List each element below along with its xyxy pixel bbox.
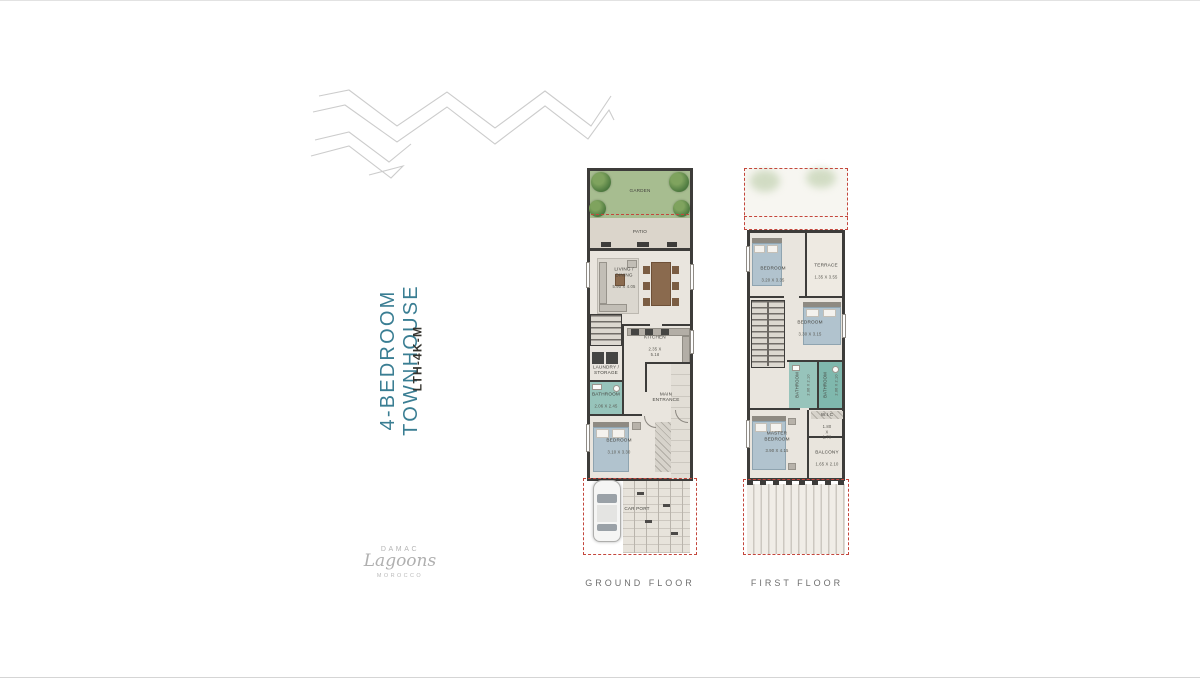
- ground-floor-caption: GROUND FLOOR: [585, 578, 695, 588]
- sink: [792, 365, 800, 371]
- room-terrace: [807, 233, 842, 296]
- wall: [622, 326, 624, 414]
- washing-machine: [592, 352, 604, 364]
- nightstand: [788, 418, 796, 425]
- pillow: [806, 309, 819, 317]
- coffee-table: [615, 274, 625, 286]
- planter: [601, 242, 611, 247]
- pergola-boundary-dashed: [743, 479, 849, 555]
- washing-machine: [606, 352, 618, 364]
- cooktop: [631, 329, 639, 335]
- roof-inner-dashed-line: [744, 216, 848, 217]
- dining-table: [651, 262, 671, 306]
- wall: [817, 362, 819, 408]
- window: [746, 246, 750, 272]
- chair: [643, 266, 650, 274]
- page-bottom-rule: [0, 677, 1200, 678]
- pillow: [612, 429, 625, 438]
- toilet: [832, 366, 839, 373]
- wall: [590, 414, 642, 416]
- room-garden: [587, 168, 693, 218]
- nightstand: [632, 422, 641, 430]
- window: [586, 424, 590, 452]
- stair-rail: [767, 302, 769, 366]
- planter: [667, 242, 677, 247]
- wall: [750, 408, 800, 410]
- wardrobe: [655, 422, 671, 472]
- pillow: [596, 429, 609, 438]
- brand-logo: DAMAC Lagoons MOROCCO: [340, 546, 460, 579]
- pillow: [823, 309, 836, 317]
- ground-floor-plan: GARDEN PATIO LIVING / DINING 5.90 X 4.05…: [587, 168, 693, 555]
- wall: [590, 380, 622, 382]
- tree-icon: [669, 172, 689, 192]
- window: [746, 420, 750, 448]
- sofa: [599, 304, 627, 312]
- window: [586, 262, 590, 288]
- model-code: LTH-4K-M: [411, 319, 426, 399]
- sofa: [599, 262, 607, 304]
- wall: [787, 360, 845, 362]
- pillow: [767, 245, 778, 253]
- wall: [750, 296, 784, 298]
- page-title: 4-BEDROOM TOWNHOUSE: [377, 225, 403, 495]
- oven: [661, 329, 669, 335]
- room-balcony: [809, 438, 842, 478]
- chair: [672, 298, 679, 306]
- planter: [637, 242, 649, 247]
- wardrobe: [811, 411, 843, 419]
- wall: [805, 230, 807, 296]
- window: [842, 314, 846, 338]
- tree-icon: [591, 172, 611, 192]
- toilet: [613, 385, 620, 392]
- nightstand: [788, 463, 796, 470]
- chair: [672, 282, 679, 290]
- chair: [643, 282, 650, 290]
- staircase: [590, 314, 622, 346]
- pillow: [754, 245, 765, 253]
- sink-appliance: [645, 329, 653, 335]
- pillow: [770, 423, 782, 432]
- first-floor-plan: BEDROOM 3.20 X 3.35 TERRACE 1.35 X 3.55 …: [747, 168, 845, 555]
- wall: [647, 362, 690, 364]
- page-top-rule: [0, 0, 1200, 1]
- wave-decoration: [305, 82, 625, 187]
- sink: [592, 384, 602, 390]
- armchair: [627, 260, 637, 268]
- pillow: [755, 423, 767, 432]
- window: [690, 330, 694, 354]
- chair: [672, 266, 679, 274]
- wall: [799, 296, 845, 298]
- brand-region: MOROCCO: [340, 573, 460, 579]
- plot-boundary-dashed-line: [591, 214, 689, 215]
- window: [690, 264, 694, 290]
- first-floor-caption: FIRST FLOOR: [751, 578, 843, 588]
- wall: [809, 436, 845, 438]
- carport-boundary-dashed: [583, 478, 697, 555]
- chair: [643, 298, 650, 306]
- wall: [807, 410, 809, 479]
- wall: [645, 362, 647, 392]
- wall: [809, 408, 845, 410]
- brand-product: Lagoons: [340, 553, 460, 571]
- roof-boundary-dashed: [744, 168, 848, 230]
- kitchen-counter: [682, 336, 690, 364]
- wall: [622, 324, 650, 326]
- wall: [662, 324, 690, 326]
